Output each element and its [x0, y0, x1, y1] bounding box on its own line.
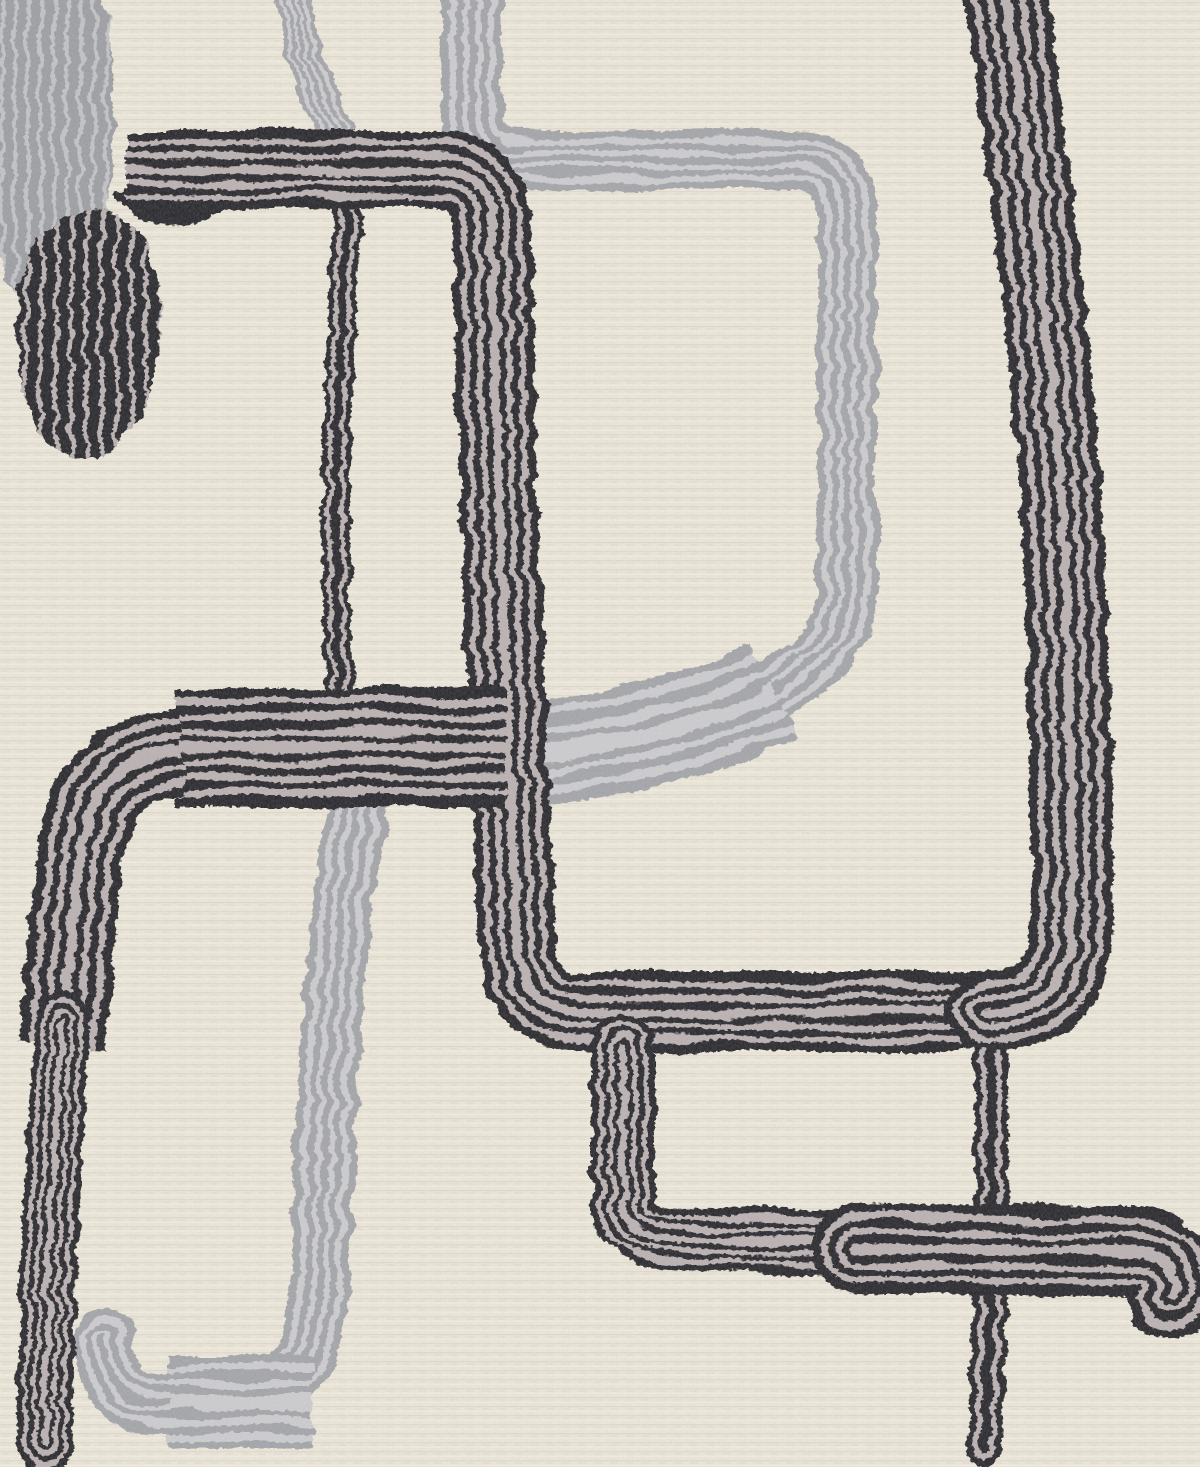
rug-photo [0, 0, 1200, 1467]
fabric-grain-light [0, 0, 1200, 1467]
rug-canvas [0, 0, 1200, 1467]
